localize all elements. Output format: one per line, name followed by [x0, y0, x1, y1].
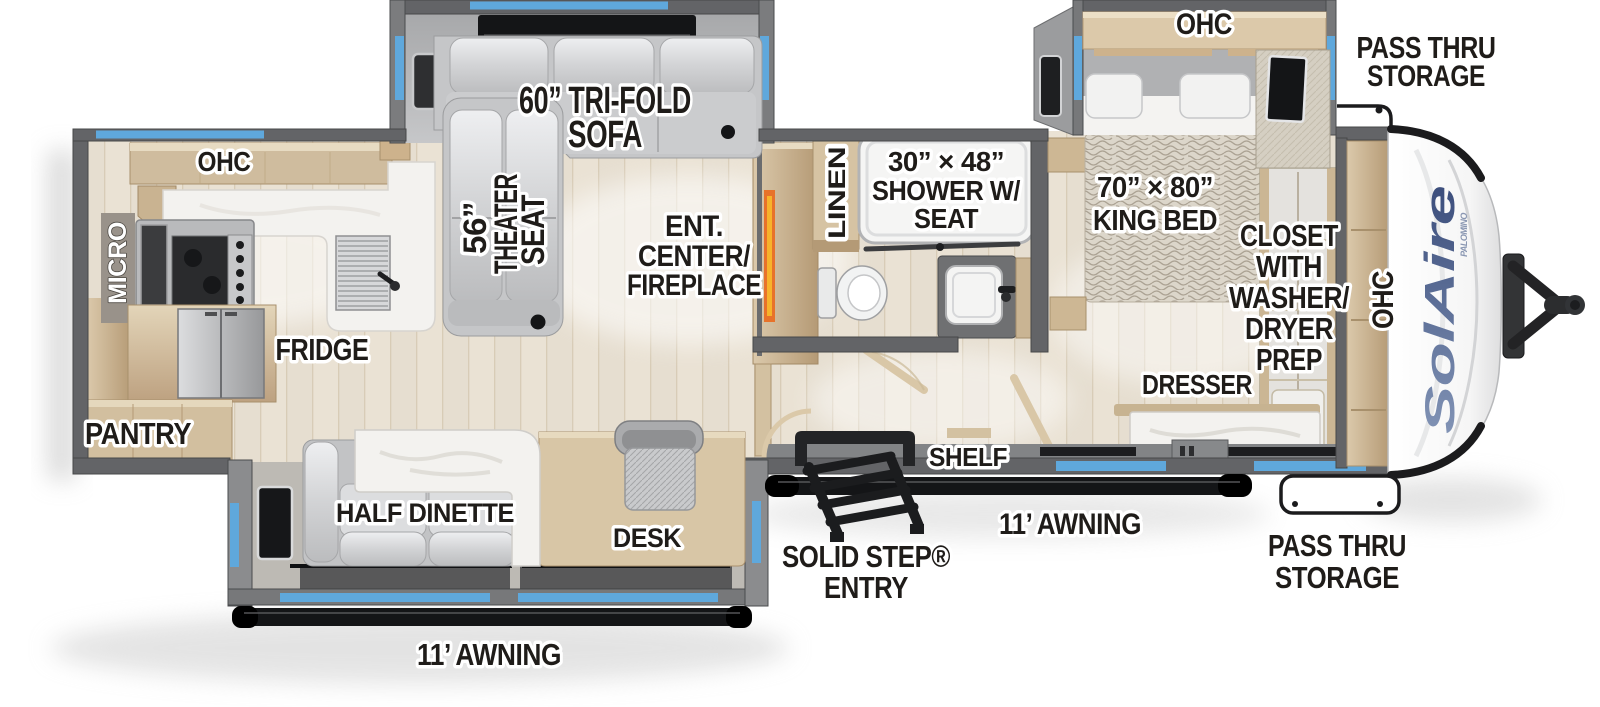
- svg-text:SOLID STEP®: SOLID STEP®: [782, 539, 951, 574]
- svg-text:30” × 48”: 30” × 48”: [888, 146, 1004, 177]
- svg-text:SHOWER W/: SHOWER W/: [872, 175, 1021, 206]
- svg-text:DESK: DESK: [613, 523, 682, 553]
- svg-text:STORAGE: STORAGE: [1367, 60, 1485, 93]
- svg-text:SolAire: SolAire: [1416, 186, 1463, 434]
- svg-text:PASS THRU: PASS THRU: [1268, 528, 1406, 563]
- svg-text:MICRO: MICRO: [104, 222, 132, 304]
- svg-text:SEAT: SEAT: [914, 203, 978, 234]
- svg-text:FIREPLACE: FIREPLACE: [627, 269, 761, 302]
- svg-text:DRYER: DRYER: [1245, 311, 1333, 346]
- svg-text:70” × 80”: 70” × 80”: [1097, 172, 1213, 204]
- svg-text:OHC: OHC: [198, 146, 251, 177]
- svg-text:PANTRY: PANTRY: [85, 416, 192, 451]
- svg-text:11’ AWNING: 11’ AWNING: [417, 637, 561, 672]
- svg-text:OHC: OHC: [1367, 271, 1400, 329]
- svg-text:PREP: PREP: [1256, 342, 1322, 377]
- svg-text:DRESSER: DRESSER: [1142, 369, 1252, 400]
- svg-text:SOFA: SOFA: [568, 114, 642, 156]
- svg-text:ENTRY: ENTRY: [824, 570, 909, 605]
- svg-text:11’ AWNING: 11’ AWNING: [999, 508, 1141, 541]
- svg-text:SHELF: SHELF: [929, 442, 1007, 472]
- svg-text:WITH: WITH: [1256, 249, 1322, 284]
- svg-text:OHC: OHC: [1176, 8, 1232, 41]
- svg-text:CLOSET: CLOSET: [1240, 218, 1338, 253]
- svg-text:ENT.: ENT.: [665, 210, 723, 243]
- svg-text:SEAT: SEAT: [515, 194, 551, 265]
- svg-text:KING BED: KING BED: [1093, 205, 1217, 237]
- svg-text:WASHER/: WASHER/: [1229, 280, 1350, 315]
- svg-text:LINEN: LINEN: [824, 147, 851, 239]
- svg-text:FRIDGE: FRIDGE: [276, 332, 369, 367]
- svg-text:PALOMINO: PALOMINO: [1459, 213, 1469, 257]
- svg-text:HALF DINETTE: HALF DINETTE: [336, 498, 514, 528]
- svg-text:STORAGE: STORAGE: [1275, 560, 1399, 595]
